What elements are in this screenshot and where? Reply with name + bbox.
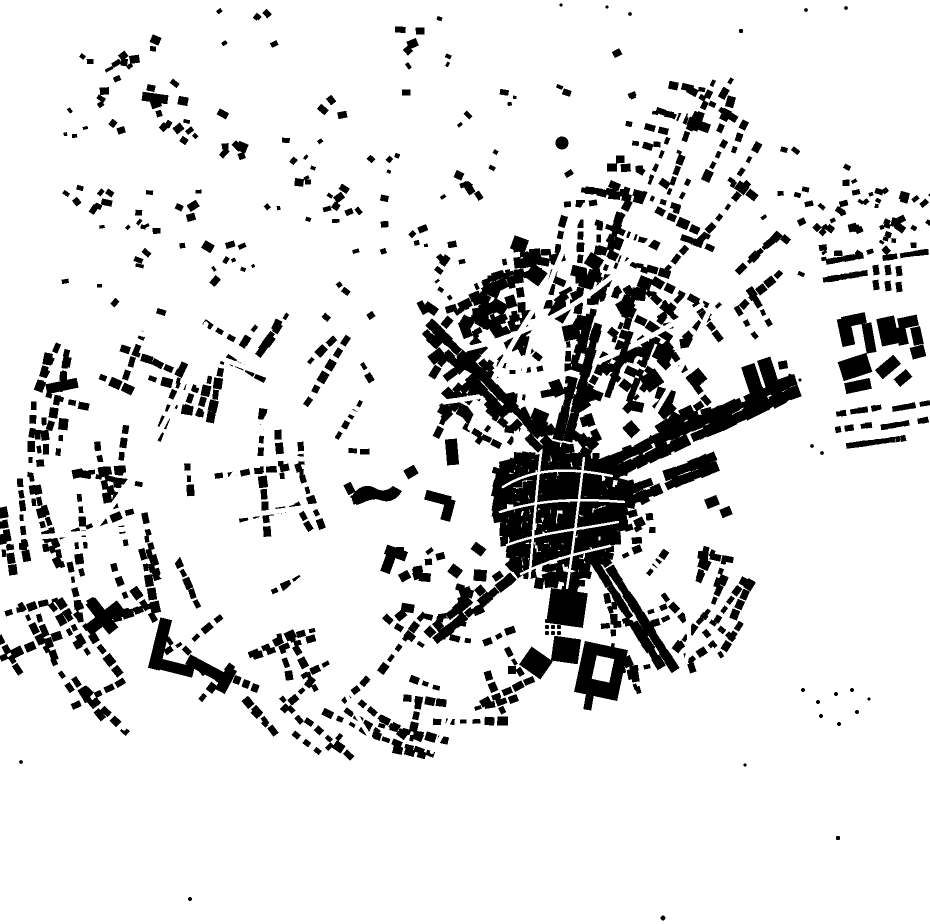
map-canvas <box>0 0 930 924</box>
figure-ground-map <box>0 0 930 924</box>
